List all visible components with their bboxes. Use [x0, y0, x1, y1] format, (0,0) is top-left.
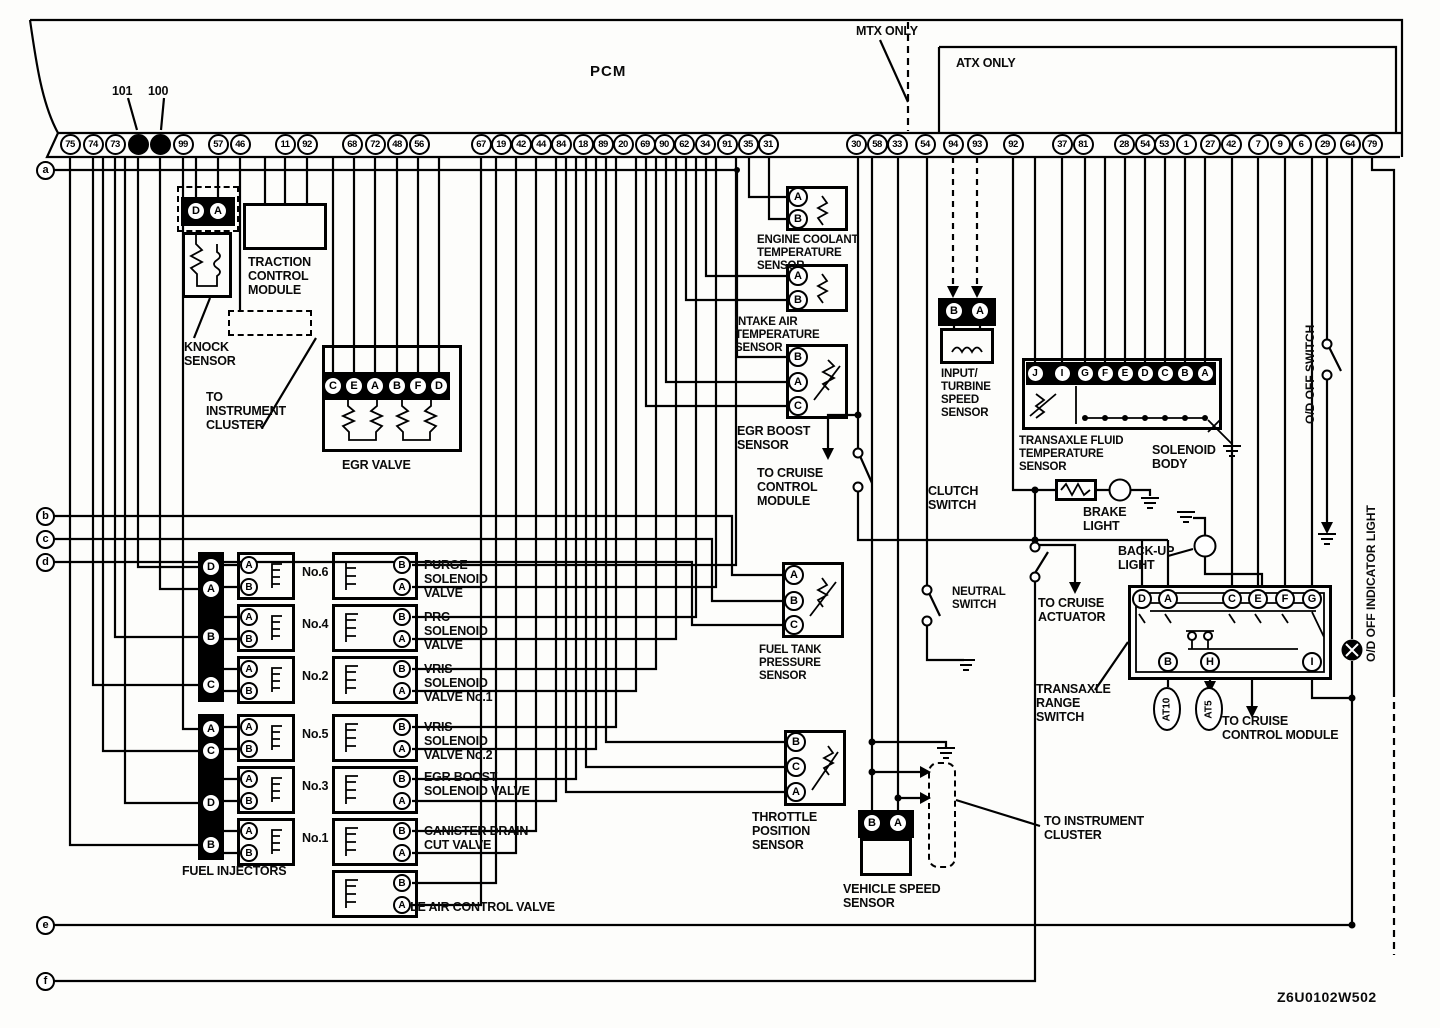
brake-fuse-box [1055, 479, 1097, 501]
at10-ellipse: AT10 [1153, 687, 1181, 731]
component-pin-C: C [1156, 364, 1175, 383]
vss-body [860, 838, 912, 876]
to-instrument-cluster-left-label: TO INSTRUMENT CLUSTER [206, 390, 286, 432]
component-pin-D: D [186, 201, 206, 221]
vris1-valve-label: VRIS SOLENOID VALVE No.1 [424, 662, 492, 704]
component-pin-A: A [888, 813, 908, 833]
egr-boost-valve-label: EGR BOOST SOLENOID VALVE [424, 770, 530, 798]
component-pin-B: B [393, 822, 411, 840]
backup-light-label: BACK-UP LIGHT [1118, 544, 1174, 572]
component-pin-A: A [393, 844, 411, 862]
component-pin-B: B [784, 591, 804, 611]
knock-sensor-box [182, 232, 232, 298]
component-pin-A: A [393, 630, 411, 648]
pcm-pin-64: 64 [1340, 134, 1361, 155]
component-pin-A: A [393, 682, 411, 700]
pcm-pin-18: 18 [573, 134, 594, 155]
component-pin-J: J [1026, 364, 1045, 383]
instrument-cluster-dashbox-right [928, 762, 956, 868]
pcm-pin-7: 7 [1248, 134, 1269, 155]
component-pin-B: B [387, 376, 407, 396]
component-pin-A: A [393, 792, 411, 810]
pcm-pin-99: 99 [173, 134, 194, 155]
component-pin-B: B [393, 660, 411, 678]
component-pin-A: A [1158, 589, 1178, 609]
pcm-pin-1: 1 [1176, 134, 1197, 155]
pcm-pin-62: 62 [674, 134, 695, 155]
to-instrument-cluster-right-label: TO INSTRUMENT CLUSTER [1044, 814, 1144, 842]
pcm-pin-53: 53 [1154, 134, 1175, 155]
at5-ellipse: AT5 [1195, 687, 1223, 731]
knock-sensor-label: KNOCK SENSOR [184, 340, 236, 368]
component-pin-B: B [788, 290, 808, 310]
pin-callout-100: 100 [148, 84, 168, 98]
pcm-pin-9: 9 [1270, 134, 1291, 155]
component-pin-B: B [786, 732, 806, 752]
component-pin-B: B [862, 813, 882, 833]
prc-valve-label: PRC SOLENOID VALVE [424, 610, 488, 652]
to-cruise-control-module-right-label: TO CRUISE CONTROL MODULE [1222, 714, 1338, 742]
pcm-pin-94: 94 [943, 134, 964, 155]
component-pin-A: A [240, 608, 258, 626]
component-pin-B: B [788, 347, 808, 367]
component-pin-A: A [240, 822, 258, 840]
pcm-pin-6: 6 [1291, 134, 1312, 155]
its-body [940, 328, 994, 364]
component-pin-A: A [208, 201, 228, 221]
component-pin-F: F [1275, 589, 1295, 609]
pcm-pin-54: 54 [1135, 134, 1156, 155]
component-pin-E: E [344, 376, 364, 396]
component-pin-D: D [1132, 589, 1152, 609]
component-pin-B: B [393, 556, 411, 574]
pcm-pin-56: 56 [409, 134, 430, 155]
component-pin-C: C [201, 675, 221, 695]
pcm-pin-34: 34 [695, 134, 716, 155]
pcm-pin-84: 84 [551, 134, 572, 155]
pcm-pin-28: 28 [1114, 134, 1135, 155]
od-off-indicator-light-label: O/D OFF INDICATOR LIGHT [1364, 505, 1378, 662]
pcm-pin-75: 75 [60, 134, 81, 155]
component-pin-B: B [240, 630, 258, 648]
pcm-pin-67: 67 [471, 134, 492, 155]
pcm-pin-68: 68 [342, 134, 363, 155]
egr-valve-label: EGR VALVE [342, 458, 411, 472]
pcm-pin-33: 33 [887, 134, 908, 155]
component-pin-F: F [1096, 364, 1115, 383]
at5-label: AT5 [1204, 700, 1215, 718]
pcm-pin-42: 42 [1221, 134, 1242, 155]
component-pin-A: A [1196, 364, 1215, 383]
clutch-switch-label: CLUTCH SWITCH [928, 484, 978, 512]
canister-valve-label: CANISTER DRAIN CUT VALVE [424, 824, 528, 852]
component-pin-A: A [365, 376, 385, 396]
component-pin-G: G [1302, 589, 1322, 609]
fuel-tank-pressure-label: FUEL TANK PRESSURE SENSOR [759, 644, 821, 683]
pcm-label: PCM [590, 64, 626, 81]
purge-valve-label: PURGE SOLENOID VALVE [424, 558, 488, 600]
neutral-switch-label: NEUTRAL SWITCH [952, 586, 1006, 612]
component-pin-I: I [1053, 364, 1072, 383]
pcm-pin-89: 89 [593, 134, 614, 155]
diagram-code: Z6U0102W502 [1277, 990, 1377, 1006]
pcm-pin-73: 73 [105, 134, 126, 155]
component-pin-B: B [240, 682, 258, 700]
component-pin-C: C [1222, 589, 1242, 609]
pcm-pin-31: 31 [758, 134, 779, 155]
pcm-pin-81: 81 [1073, 134, 1094, 155]
to-cruise-control-module-center-label: TO CRUISE CONTROL MODULE [757, 466, 823, 508]
fuel-injectors-label: FUEL INJECTORS [182, 864, 286, 878]
pcm-pin-100: 100 [150, 134, 171, 155]
egr-boost-sensor-label: EGR BOOST SENSOR [737, 424, 810, 452]
pcm-pin-37: 37 [1052, 134, 1073, 155]
injector-no6-label: No.6 [302, 565, 328, 579]
pcm-pin-58: 58 [867, 134, 888, 155]
side-port-c: c [36, 530, 55, 549]
to-cruise-actuator-label: TO CRUISE ACTUATOR [1038, 596, 1105, 624]
component-pin-A: A [240, 770, 258, 788]
mtx-leader [880, 40, 908, 102]
pcm-pin-54: 54 [915, 134, 936, 155]
pcm-pin-72: 72 [365, 134, 386, 155]
pcm-pin-30: 30 [846, 134, 867, 155]
component-pin-A: A [786, 782, 806, 802]
injector-no2-label: No.2 [302, 669, 328, 683]
pcm-pin-101: 101 [128, 134, 149, 155]
component-pin-A: A [788, 266, 808, 286]
component-pin-B: B [393, 718, 411, 736]
pcm-pin-42: 42 [511, 134, 532, 155]
component-pin-B: B [1158, 652, 1178, 672]
injector-no4-label: No.4 [302, 617, 328, 631]
component-pin-B: B [201, 835, 221, 855]
component-pin-D: D [429, 376, 449, 396]
pcm-pin-46: 46 [230, 134, 251, 155]
pcm-pin-74: 74 [83, 134, 104, 155]
pcm-pin-92: 92 [1003, 134, 1024, 155]
component-pin-I: I [1302, 652, 1322, 672]
pcm-pin-35: 35 [738, 134, 759, 155]
component-pin-B: B [393, 874, 411, 892]
component-pin-H: H [1200, 652, 1220, 672]
component-pin-B: B [240, 740, 258, 758]
pcm-pin-48: 48 [387, 134, 408, 155]
component-pin-A: A [784, 565, 804, 585]
component-pin-B: B [240, 844, 258, 862]
at10-label: AT10 [1162, 697, 1173, 721]
side-port-a: a [36, 161, 55, 180]
pcm-pin-92: 92 [297, 134, 318, 155]
pcm-pin-29: 29 [1315, 134, 1336, 155]
od-indicator-bulb [1342, 640, 1363, 661]
component-pin-B: B [240, 792, 258, 810]
pcm-pin-93: 93 [967, 134, 988, 155]
component-pin-A: A [393, 740, 411, 758]
injector-no3-label: No.3 [302, 779, 328, 793]
side-port-d: d [36, 553, 55, 572]
pcm-pin-11: 11 [275, 134, 296, 155]
component-pin-A: A [788, 187, 808, 207]
pcm-pin-27: 27 [1200, 134, 1221, 155]
od-off-switch-label: O/D OFF SWITCH [1303, 325, 1317, 424]
solenoid-body-label: SOLENOID BODY [1152, 443, 1216, 471]
transaxle-fluid-temp-label: TRANSAXLE FLUID TEMPERATURE SENSOR [1019, 435, 1123, 474]
component-pin-B: B [201, 627, 221, 647]
traction-control-module-box [243, 203, 327, 250]
component-pin-C: C [201, 741, 221, 761]
vris2-valve-label: VRIS SOLENOID VALVE No.2 [424, 720, 492, 762]
component-pin-D: D [201, 557, 221, 577]
component-pin-A: A [201, 719, 221, 739]
component-pin-F: F [408, 376, 428, 396]
component-pin-A: A [970, 301, 990, 321]
atx-only-label: ATX ONLY [956, 56, 1016, 70]
iac-valve-label: IDLE AIR CONTROL VALVE [398, 900, 555, 914]
wiring-diagram: PCM MTX ONLY ATX ONLY 101 100 KNOCK SENS… [0, 0, 1440, 1028]
ect-sensor-label: ENGINE COOLANT TEMPERATURE SENSOR [757, 234, 858, 273]
component-pin-D: D [1136, 364, 1155, 383]
side-port-e: e [36, 916, 55, 935]
pcm-pin-91: 91 [717, 134, 738, 155]
injector-no5-label: No.5 [302, 727, 328, 741]
side-port-f: f [36, 972, 55, 991]
mtx-only-label: MTX ONLY [856, 24, 918, 38]
component-pin-A: A [201, 579, 221, 599]
component-pin-G: G [1076, 364, 1095, 383]
side-port-b: b [36, 507, 55, 526]
component-pin-C: C [786, 757, 806, 777]
brake-light-label: BRAKE LIGHT [1083, 505, 1126, 533]
pcm-pin-44: 44 [531, 134, 552, 155]
component-pin-C: C [323, 376, 343, 396]
component-pin-A: A [393, 896, 411, 914]
traction-control-module-label: TRACTION CONTROL MODULE [248, 255, 311, 297]
component-pin-A: A [393, 578, 411, 596]
component-pin-E: E [1116, 364, 1135, 383]
throttle-position-label: THROTTLE POSITION SENSOR [752, 810, 817, 852]
component-pin-C: C [784, 615, 804, 635]
component-pin-B: B [1176, 364, 1195, 383]
pcm-pin-20: 20 [613, 134, 634, 155]
component-pin-C: C [788, 396, 808, 416]
component-pin-D: D [201, 793, 221, 813]
pin-callout-101: 101 [112, 84, 132, 98]
component-pin-A: A [240, 718, 258, 736]
pcm-pin-79: 79 [1362, 134, 1383, 155]
component-pin-B: B [788, 209, 808, 229]
pcm-pin-90: 90 [654, 134, 675, 155]
pcm-pin-19: 19 [491, 134, 512, 155]
callout-leaders [128, 98, 164, 130]
component-pin-A: A [240, 660, 258, 678]
component-pin-B: B [393, 608, 411, 626]
vehicle-speed-sensor-label: VEHICLE SPEED SENSOR [843, 882, 940, 910]
input-turbine-speed-sensor-label: INPUT/ TURBINE SPEED SENSOR [941, 368, 991, 420]
component-pin-A: A [240, 556, 258, 574]
component-pin-A: A [788, 372, 808, 392]
iat-sensor-label: INTAKE AIR TEMPERATURE SENSOR [735, 316, 819, 355]
transaxle-range-switch-label: TRANSAXLE RANGE SWITCH [1036, 682, 1111, 724]
component-pin-B: B [240, 578, 258, 596]
component-pin-E: E [1248, 589, 1268, 609]
component-pin-B: B [393, 770, 411, 788]
injector-no1-label: No.1 [302, 831, 328, 845]
component-pin-B: B [944, 301, 964, 321]
pcm-pin-69: 69 [635, 134, 656, 155]
instrument-cluster-dashbox-left [228, 310, 312, 336]
pcm-pin-57: 57 [208, 134, 229, 155]
